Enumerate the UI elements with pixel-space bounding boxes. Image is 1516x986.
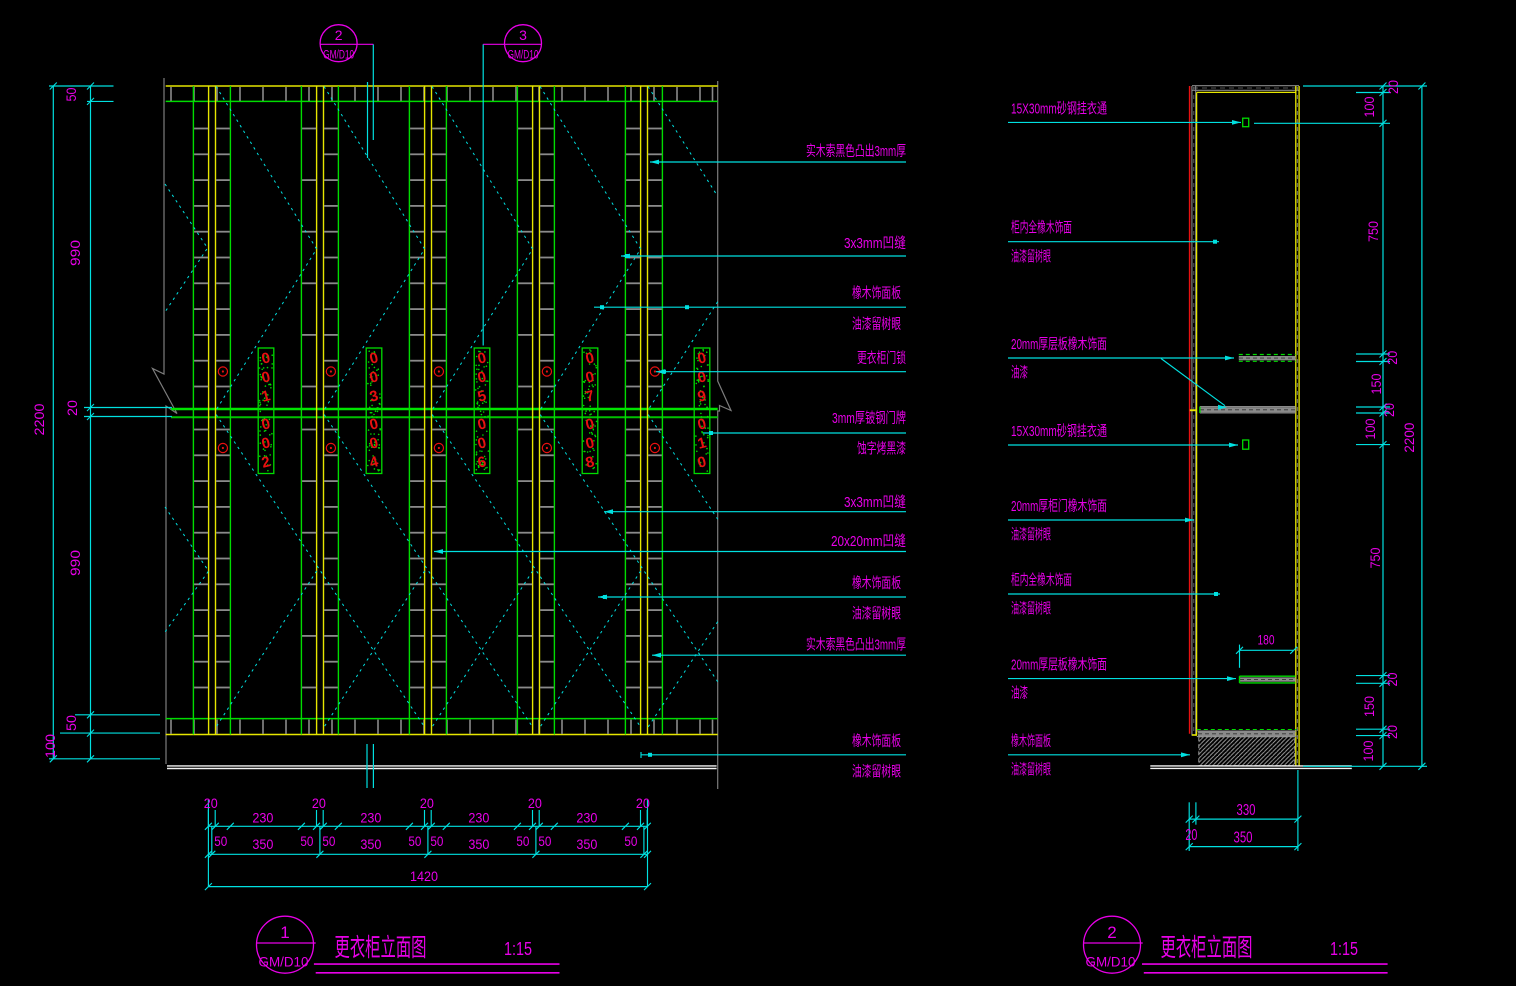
svg-text:2: 2	[335, 27, 343, 43]
svg-text:蚀字烤黑漆: 蚀字烤黑漆	[857, 440, 906, 457]
svg-text:3x3mm凹缝: 3x3mm凹缝	[844, 494, 906, 511]
svg-text:230: 230	[576, 810, 597, 826]
svg-text:15X30mm砂钢挂衣通: 15X30mm砂钢挂衣通	[1011, 423, 1107, 440]
svg-text:橡木饰面板: 橡木饰面板	[852, 732, 901, 750]
svg-text:20: 20	[1384, 672, 1400, 686]
svg-text:50: 50	[300, 833, 313, 849]
svg-text:990: 990	[67, 550, 83, 576]
svg-text:350: 350	[360, 836, 381, 852]
svg-text:50: 50	[624, 833, 637, 849]
svg-text:350: 350	[1234, 830, 1253, 847]
svg-text:更衣柜门锁: 更衣柜门锁	[857, 350, 906, 367]
svg-text:20: 20	[64, 400, 80, 416]
svg-text:橡木饰面板: 橡木饰面板	[852, 574, 901, 592]
svg-text:2200: 2200	[31, 403, 47, 435]
svg-text:230: 230	[252, 810, 273, 826]
svg-text:50: 50	[214, 833, 227, 849]
svg-text:50: 50	[538, 833, 551, 849]
svg-text:20x20mm凹缝: 20x20mm凹缝	[831, 533, 906, 550]
svg-text:GM/D10: GM/D10	[508, 50, 539, 62]
svg-text:350: 350	[252, 836, 273, 852]
svg-text:油漆: 油漆	[1011, 365, 1028, 382]
svg-text:100: 100	[1360, 740, 1376, 761]
svg-text:GM/D10: GM/D10	[259, 954, 309, 970]
svg-text:橡木饰面板: 橡木饰面板	[852, 284, 901, 302]
svg-text:100: 100	[1362, 418, 1378, 439]
svg-text:150: 150	[1368, 373, 1384, 394]
svg-text:20: 20	[1384, 725, 1400, 739]
svg-text:50: 50	[516, 833, 529, 849]
svg-text:更衣柜立面图: 更衣柜立面图	[335, 934, 427, 962]
svg-text:2: 2	[1107, 923, 1116, 942]
svg-text:橡木饰面板: 橡木饰面板	[1011, 732, 1051, 750]
svg-text:3mm厚铍钢门牌: 3mm厚铍钢门牌	[832, 410, 906, 427]
svg-text:990: 990	[67, 240, 83, 266]
svg-text:230: 230	[360, 810, 381, 826]
svg-text:1: 1	[280, 923, 289, 942]
svg-text:油漆留树眼: 油漆留树眼	[1011, 601, 1051, 618]
svg-text:3x3mm凹缝: 3x3mm凹缝	[844, 235, 906, 252]
svg-text:20: 20	[204, 795, 218, 811]
svg-text:20: 20	[528, 795, 542, 811]
svg-text:350: 350	[576, 836, 597, 852]
svg-text:180: 180	[1258, 632, 1275, 648]
svg-text:50: 50	[63, 715, 79, 731]
svg-text:750: 750	[1365, 221, 1381, 242]
svg-text:20: 20	[1384, 351, 1400, 365]
svg-text:1:15: 1:15	[1330, 939, 1358, 959]
svg-text:1420: 1420	[410, 868, 438, 884]
svg-text:油漆留树眼: 油漆留树眼	[1011, 761, 1051, 778]
svg-text:柜内全橡木饰面: 柜内全橡木饰面	[1011, 571, 1072, 589]
svg-text:柜内全橡木饰面: 柜内全橡木饰面	[1011, 219, 1072, 237]
svg-text:20mm厚层板橡木饰面: 20mm厚层板橡木饰面	[1011, 335, 1107, 353]
svg-text:150: 150	[1361, 696, 1377, 717]
svg-text:50: 50	[430, 833, 443, 849]
svg-text:20mm厚层板橡木饰面: 20mm厚层板橡木饰面	[1011, 656, 1107, 674]
svg-text:3: 3	[519, 27, 527, 43]
svg-text:1:15: 1:15	[504, 939, 532, 959]
svg-text:20: 20	[1381, 403, 1397, 417]
svg-text:350: 350	[468, 836, 489, 852]
svg-text:油漆留树眼: 油漆留树眼	[852, 763, 901, 780]
svg-text:油漆留树眼: 油漆留树眼	[852, 316, 901, 333]
svg-text:实木索黑色凸出3mm厚: 实木索黑色凸出3mm厚	[806, 636, 906, 653]
svg-text:GM/D10: GM/D10	[1086, 954, 1136, 970]
svg-text:20: 20	[420, 795, 434, 811]
svg-text:50: 50	[408, 833, 421, 849]
svg-text:750: 750	[1367, 547, 1383, 568]
svg-text:15X30mm砂钢挂衣通: 15X30mm砂钢挂衣通	[1011, 100, 1107, 117]
svg-text:实木索黑色凸出3mm厚: 实木索黑色凸出3mm厚	[806, 143, 906, 160]
svg-text:20mm厚柜门橡木饰面: 20mm厚柜门橡木饰面	[1011, 498, 1107, 515]
svg-text:油漆: 油漆	[1011, 685, 1028, 702]
svg-text:50: 50	[322, 833, 335, 849]
svg-text:50: 50	[63, 87, 79, 101]
svg-text:20: 20	[1185, 827, 1197, 844]
svg-text:230: 230	[468, 810, 489, 826]
svg-text:20: 20	[312, 795, 326, 811]
svg-text:油漆留树眼: 油漆留树眼	[852, 605, 901, 622]
svg-text:2200: 2200	[1401, 422, 1417, 452]
svg-text:20: 20	[636, 795, 650, 811]
svg-text:油漆留树眼: 油漆留树眼	[1011, 527, 1051, 544]
svg-text:330: 330	[1237, 802, 1256, 819]
svg-text:100: 100	[42, 734, 58, 758]
svg-text:油漆留树眼: 油漆留树眼	[1011, 248, 1051, 265]
svg-text:20: 20	[1385, 80, 1401, 94]
svg-text:GM/D10: GM/D10	[323, 50, 354, 62]
svg-text:更衣柜立面图: 更衣柜立面图	[1161, 934, 1253, 962]
svg-text:100: 100	[1361, 96, 1377, 117]
